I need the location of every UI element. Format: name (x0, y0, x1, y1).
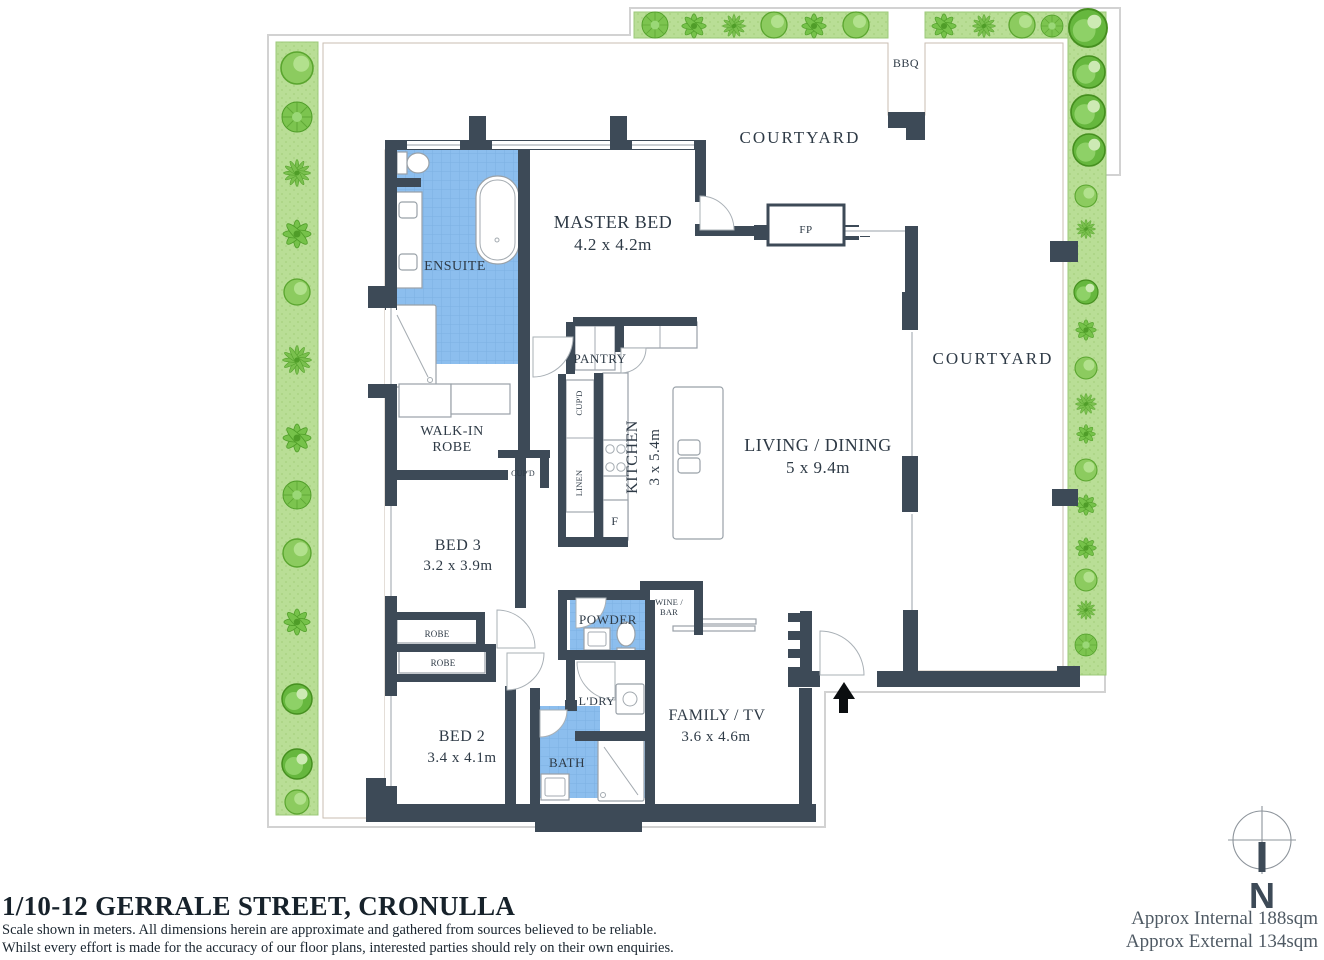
plant-icon (1075, 357, 1097, 379)
shower-icon (598, 739, 644, 801)
footer: 1/10-12 GERRALE STREET, CRONULLA Scale s… (2, 891, 1318, 956)
plant-icon (642, 12, 668, 38)
plant-icon (843, 12, 869, 38)
bed2-dims: 3.4 x 4.1m (427, 750, 496, 766)
bath-label: BATH (549, 755, 585, 770)
plant-icon (1075, 569, 1097, 591)
disclaimer-line2: Whilst every effort is made for the accu… (2, 940, 674, 956)
walk-in-robe-label2: ROBE (432, 440, 471, 455)
powder-label: POWDER (579, 612, 637, 627)
plant-icon (1077, 425, 1096, 444)
plant-icon (1075, 634, 1097, 656)
plant-icon (283, 539, 311, 567)
plant-icon (283, 424, 311, 452)
vanity-basin-icon (399, 202, 417, 218)
robe2-label: ROBE (431, 658, 456, 668)
bathtub-icon (476, 176, 519, 264)
plant-icon (1069, 9, 1107, 47)
master-bed-label: MASTER BED (554, 212, 673, 232)
courtyard-right-label: COURTYARD (933, 349, 1054, 368)
console-shelf (673, 626, 755, 631)
living-dining-dims: 5 x 9.4m (786, 458, 850, 477)
wardrobe-box (399, 384, 451, 417)
laundry-label: L'DRY (579, 694, 616, 708)
plant-icon (284, 609, 310, 635)
floorplan-canvas: COURTYARD COURTYARD BBQ FP MASTER BED 4.… (0, 0, 1324, 960)
wine-bar-label1: WINE / (655, 597, 683, 607)
shower-icon (391, 305, 436, 387)
pantry-label: PANTRY (573, 351, 626, 366)
plant-icon (283, 481, 311, 509)
internal-area-label: Approx Internal 188sqm (1131, 908, 1318, 929)
disclaimer-line1: Scale shown in meters. All dimensions he… (2, 922, 657, 938)
vanity-basin-icon (399, 254, 417, 270)
cupd-kitchen-label: CUP'D (574, 390, 584, 415)
console-shelf (700, 619, 756, 624)
kitchen-label: KITCHEN (624, 420, 641, 494)
plant-icon (1073, 134, 1105, 166)
plant-icon (1076, 320, 1097, 341)
courtyard-top-label: COURTYARD (740, 128, 861, 147)
wine-bar-label2: BAR (660, 607, 678, 617)
cupd-hall-label: CUP'D (511, 469, 535, 478)
fireplace-label: FP (799, 224, 812, 236)
sink-icon (678, 458, 700, 473)
family-tv-label: FAMILY / TV (669, 707, 766, 724)
ensuite-label: ENSUITE (424, 259, 486, 274)
toilet-icon (397, 152, 429, 174)
plant-icon (1076, 538, 1097, 559)
wardrobe-box (451, 384, 510, 414)
island-bench (673, 387, 723, 539)
plant-icon (1009, 12, 1035, 38)
bed3-dims: 3.2 x 3.9m (423, 558, 492, 574)
plant-icon (682, 14, 706, 38)
plant-icon (1071, 95, 1105, 129)
bed2-label: BED 2 (439, 728, 486, 745)
plant-icon (761, 12, 787, 38)
plant-icon (1073, 56, 1105, 88)
plant-icon (932, 14, 956, 38)
plant-icon (1074, 280, 1098, 304)
external-area-label: Approx External 134sqm (1126, 931, 1318, 952)
plant-icon (285, 790, 309, 814)
plant-icon (282, 749, 312, 779)
fridge-label: F (611, 514, 618, 528)
plant-icon (283, 220, 311, 248)
plant-icon (1076, 495, 1097, 516)
linen-label: LINEN (574, 470, 584, 497)
compass-icon: N (1228, 806, 1296, 916)
address-title: 1/10-12 GERRALE STREET, CRONULLA (2, 891, 515, 921)
plant-icon (802, 14, 826, 38)
washtub-icon (616, 684, 644, 714)
plant-icon (1041, 15, 1063, 37)
plant-icon (284, 279, 310, 305)
robe1-label: ROBE (425, 629, 450, 639)
walk-in-robe-label1: WALK-IN (420, 424, 483, 439)
master-bed-dims: 4.2 x 4.2m (574, 235, 652, 254)
bbq-label: BBQ (893, 56, 919, 70)
plant-icon (1075, 459, 1097, 481)
kitchen-dims: 3 x 5.4m (647, 429, 663, 486)
sink-icon (678, 440, 700, 455)
plant-icon (281, 52, 313, 84)
plant-icon (282, 684, 312, 714)
floorplan-page: COURTYARD COURTYARD BBQ FP MASTER BED 4.… (0, 0, 1324, 960)
plant-icon (1075, 185, 1097, 207)
bed3-label: BED 3 (435, 537, 482, 554)
family-tv-dims: 3.6 x 4.6m (681, 729, 750, 745)
living-dining-label: LIVING / DINING (744, 435, 891, 455)
plant-icon (282, 102, 312, 132)
